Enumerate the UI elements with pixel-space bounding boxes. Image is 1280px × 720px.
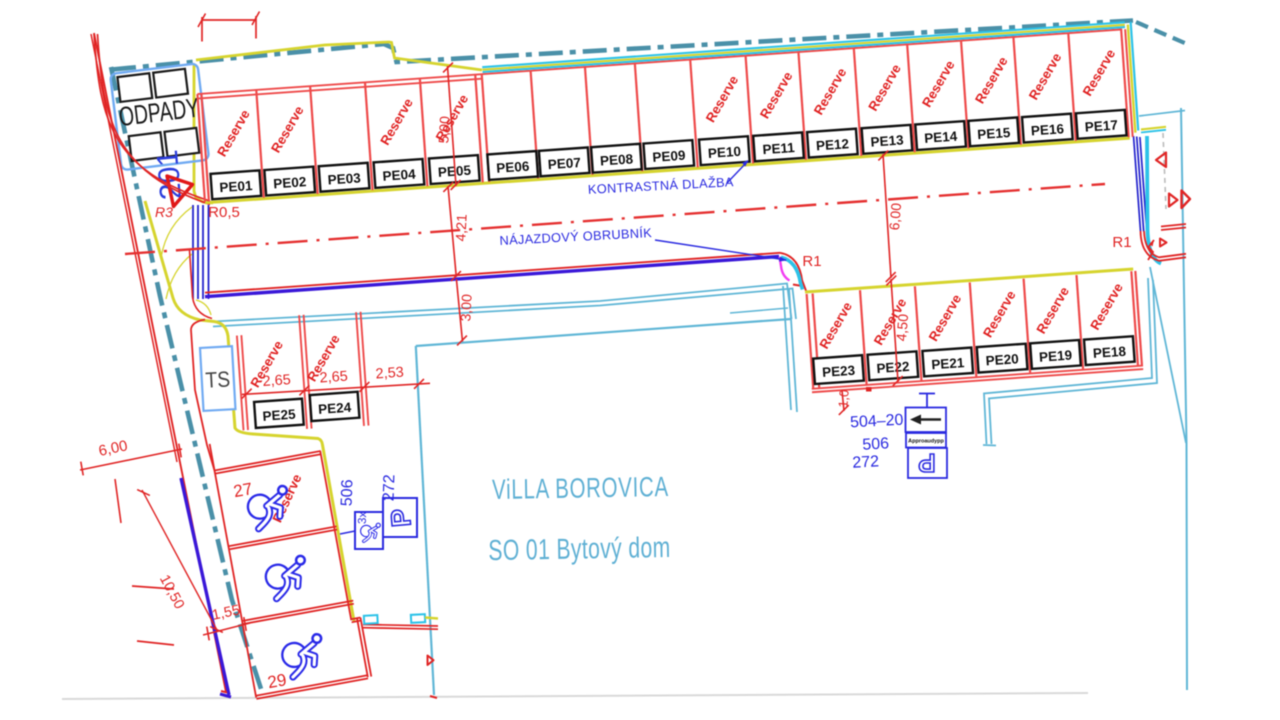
svg-text:4,21: 4,21 bbox=[452, 214, 469, 242]
svg-text:PE19: PE19 bbox=[1039, 348, 1073, 365]
svg-text:2,65: 2,65 bbox=[319, 369, 348, 387]
svg-text:PE04: PE04 bbox=[382, 167, 416, 184]
svg-text:P: P bbox=[918, 448, 935, 478]
svg-text:PE07: PE07 bbox=[547, 155, 581, 172]
svg-text:R1: R1 bbox=[802, 253, 821, 270]
svg-text:PE02: PE02 bbox=[273, 174, 307, 191]
svg-text:3,00: 3,00 bbox=[457, 294, 474, 322]
svg-text:PE12: PE12 bbox=[815, 136, 849, 153]
svg-text:506: 506 bbox=[862, 435, 890, 453]
svg-text:PE25: PE25 bbox=[262, 407, 296, 424]
svg-text:2,53: 2,53 bbox=[375, 365, 404, 383]
svg-text:PE09: PE09 bbox=[652, 148, 686, 165]
svg-text:PE13: PE13 bbox=[870, 132, 904, 149]
svg-text:PE21: PE21 bbox=[931, 355, 965, 372]
svg-text:R1: R1 bbox=[1112, 234, 1131, 251]
svg-text:1,0: 1,0 bbox=[835, 389, 852, 408]
svg-text:4,50: 4,50 bbox=[893, 313, 911, 342]
svg-text:PE18: PE18 bbox=[1092, 344, 1126, 361]
svg-text:506: 506 bbox=[339, 479, 357, 506]
svg-text:6,00: 6,00 bbox=[886, 202, 904, 231]
svg-text:272: 272 bbox=[381, 474, 399, 501]
svg-text:PE11: PE11 bbox=[762, 140, 796, 157]
svg-text:R0,5: R0,5 bbox=[208, 204, 240, 221]
svg-text:PE10: PE10 bbox=[707, 144, 741, 161]
svg-text:SO 01 Bytový dom: SO 01 Bytový dom bbox=[488, 532, 671, 567]
svg-text:PE14: PE14 bbox=[924, 129, 958, 146]
svg-text:PE01: PE01 bbox=[219, 178, 253, 195]
svg-text:PE03: PE03 bbox=[327, 170, 361, 187]
svg-text:272: 272 bbox=[852, 453, 880, 471]
svg-text:3x: 3x bbox=[357, 511, 369, 524]
svg-text:PE24: PE24 bbox=[318, 400, 352, 417]
svg-text:PE16: PE16 bbox=[1030, 121, 1064, 138]
svg-text:TS: TS bbox=[205, 367, 231, 393]
svg-text:P: P bbox=[385, 508, 416, 529]
svg-text:PE20: PE20 bbox=[985, 351, 1019, 368]
svg-text:PE08: PE08 bbox=[600, 151, 634, 168]
svg-text:R3: R3 bbox=[155, 204, 173, 220]
svg-text:PE15: PE15 bbox=[977, 125, 1011, 142]
svg-text:29: 29 bbox=[266, 670, 288, 692]
svg-text:Approaudypp: Approaudypp bbox=[908, 439, 944, 445]
svg-text:PE23: PE23 bbox=[822, 363, 856, 380]
svg-text:PE06: PE06 bbox=[496, 159, 530, 176]
svg-text:504–20: 504–20 bbox=[850, 412, 904, 432]
svg-text:PE22: PE22 bbox=[876, 359, 910, 376]
svg-text:5,00: 5,00 bbox=[435, 116, 452, 144]
svg-text:ViLLA BOROVICA: ViLLA BOROVICA bbox=[492, 472, 669, 506]
svg-text:PE17: PE17 bbox=[1084, 117, 1118, 134]
svg-text:2,65: 2,65 bbox=[262, 372, 291, 390]
